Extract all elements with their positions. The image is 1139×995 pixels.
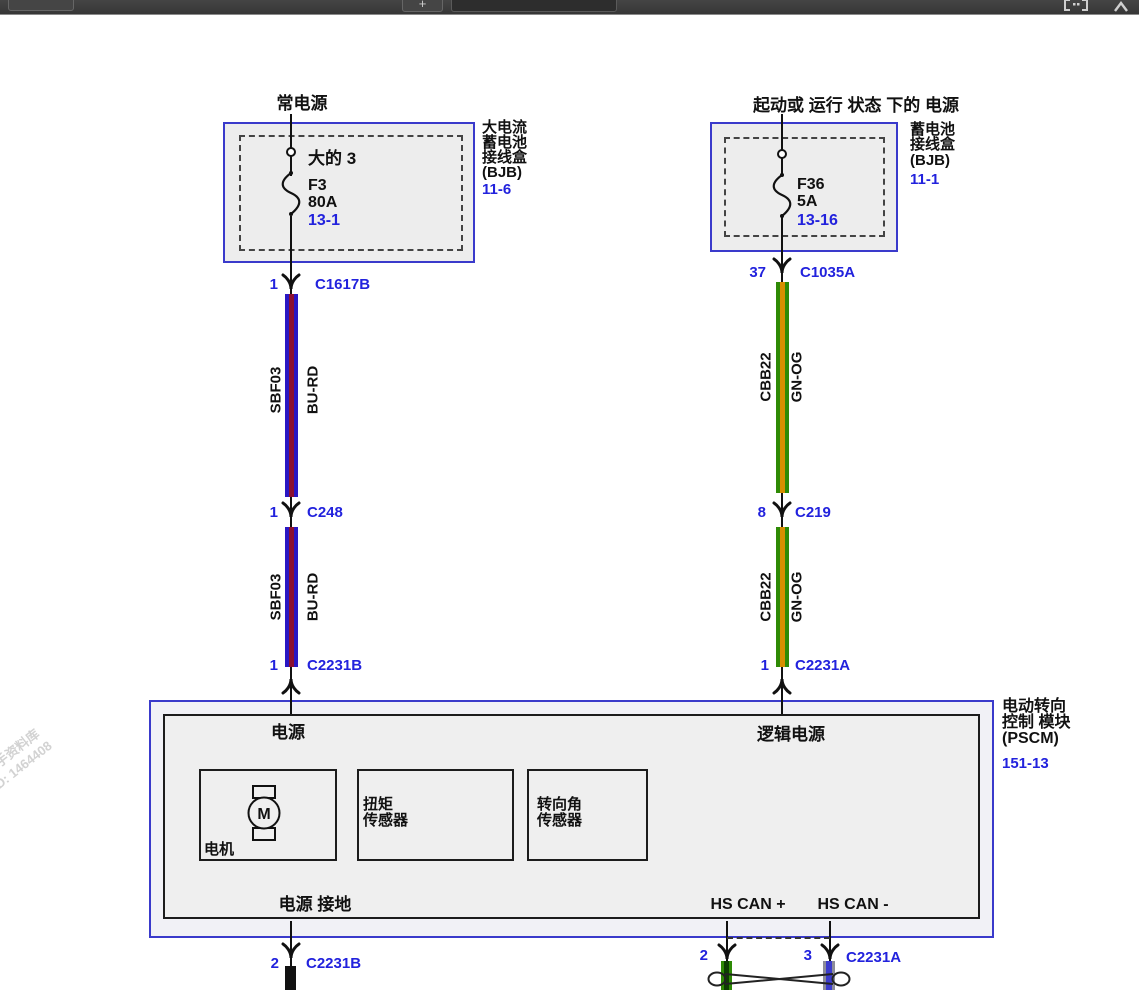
motor-m-glyph: M: [257, 806, 270, 823]
left-power-header: 常电源: [277, 95, 328, 114]
bjb-right-page-link[interactable]: 11-1: [910, 172, 939, 189]
connector-name-link[interactable]: C2231A: [846, 950, 901, 967]
connector-arrow-down-icon: [819, 942, 841, 961]
connector-arrow-up-icon: [771, 677, 793, 696]
wire-circuit-label: CBB22: [758, 352, 775, 401]
connector-arrow-down-icon: [280, 272, 302, 291]
fuse-rating: 80A: [308, 194, 337, 212]
wire-circuit-label: SBF03: [268, 574, 285, 621]
connector-pin: 2: [692, 948, 708, 965]
hs-can-high-label: HS CAN +: [710, 896, 785, 914]
motor-label: 电机: [204, 842, 234, 859]
pscm-ground-label: 电源 接地: [279, 896, 352, 915]
connector-name-link[interactable]: C219: [795, 505, 831, 522]
connector-name-link[interactable]: C2231B: [306, 956, 361, 973]
twisted-pair-dashed-link: [727, 937, 830, 939]
wire-color-label: BU-RD: [305, 366, 322, 414]
wire-bu-rd-segment1: [285, 294, 298, 497]
wire-gn-og-segment1: [776, 282, 789, 493]
add-tab-button[interactable]: +: [402, 0, 443, 12]
twisted-pair-icon: [703, 963, 855, 995]
wire-circuit-label: CBB22: [758, 572, 775, 621]
wire-black-ground: [285, 966, 296, 990]
caret-up-icon[interactable]: [1112, 0, 1130, 13]
connector-arrow-down-icon: [716, 942, 738, 961]
fuse-icon: [278, 170, 304, 218]
fuse-rating: 5A: [797, 193, 817, 211]
fuse-name: F36: [797, 176, 825, 194]
bjb-left-page-link[interactable]: 11-6: [482, 182, 511, 199]
fuse-holder-label: 大的 3: [308, 150, 356, 169]
wire-color-label: GN-OG: [789, 352, 806, 403]
toolbar-back-button[interactable]: [8, 0, 74, 11]
connector-pin: 3: [798, 948, 812, 965]
fuse-icon: [769, 172, 795, 220]
pscm-side-label: (PSCM): [1002, 730, 1059, 748]
hs-can-low-label: HS CAN -: [817, 896, 888, 914]
connector-pin: 8: [752, 505, 766, 522]
fuse-name: F3: [308, 177, 327, 195]
wire-color-label: GN-OG: [789, 572, 806, 623]
connector-pin: 37: [744, 265, 766, 282]
wire-circuit-label: SBF03: [268, 367, 285, 414]
pscm-side-label: 控制 模块: [1002, 714, 1070, 732]
connector-pin: 1: [755, 658, 769, 675]
terminal-circle-icon: [774, 146, 790, 162]
connector-name-link[interactable]: C1617B: [315, 277, 370, 294]
wire-color-label: BU-RD: [305, 573, 322, 621]
terminal-circle-icon: [283, 144, 299, 160]
motor-icon: M: [246, 782, 282, 844]
fuse-page-link[interactable]: 13-16: [797, 212, 838, 230]
bjb-right-side-label: (BJB): [910, 153, 950, 170]
pscm-power-label: 电源: [271, 724, 305, 743]
connector-name-link[interactable]: C2231B: [307, 658, 362, 675]
pscm-side-label: 电动转向: [1002, 698, 1066, 716]
connector-pin: 1: [262, 658, 278, 675]
torque-sensor-label: 传感器: [363, 813, 408, 830]
connector-pin: 1: [262, 505, 278, 522]
connector-name-link[interactable]: C1035A: [800, 265, 855, 282]
wire-line: [781, 114, 783, 176]
connector-pin: 2: [263, 956, 279, 973]
wire-gn-og-segment2: [776, 527, 789, 667]
pscm-page-link[interactable]: 151-13: [1002, 756, 1049, 773]
connector-name-link[interactable]: C2231A: [795, 658, 850, 675]
pscm-logic-power-label: 逻辑电源: [757, 726, 825, 745]
wiring-diagram-page: { "toolbar": { "add_button_label": "+", …: [0, 0, 1139, 990]
watermark-left: 汽修帮手资料库 ID: 1464408: [0, 724, 55, 808]
connector-arrow-down-icon: [280, 941, 302, 960]
bjb-left-side-label: (BJB): [482, 165, 522, 182]
right-power-header: 起动或 运行 状态 下的 电源: [753, 97, 959, 116]
fullscreen-icon[interactable]: [1063, 0, 1089, 13]
search-input[interactable]: [451, 0, 617, 12]
connector-arrow-down-icon: [280, 500, 302, 519]
connector-arrow-up-icon: [280, 677, 302, 696]
angle-sensor-label: 传感器: [537, 813, 582, 830]
wire-bu-rd-segment2: [285, 527, 298, 667]
connector-name-link[interactable]: C248: [307, 505, 343, 522]
top-toolbar: +: [0, 0, 1139, 15]
connector-pin: 1: [262, 277, 278, 294]
fuse-page-link[interactable]: 13-1: [308, 212, 340, 230]
connector-arrow-down-icon: [771, 256, 793, 275]
connector-arrow-down-icon: [771, 500, 793, 519]
